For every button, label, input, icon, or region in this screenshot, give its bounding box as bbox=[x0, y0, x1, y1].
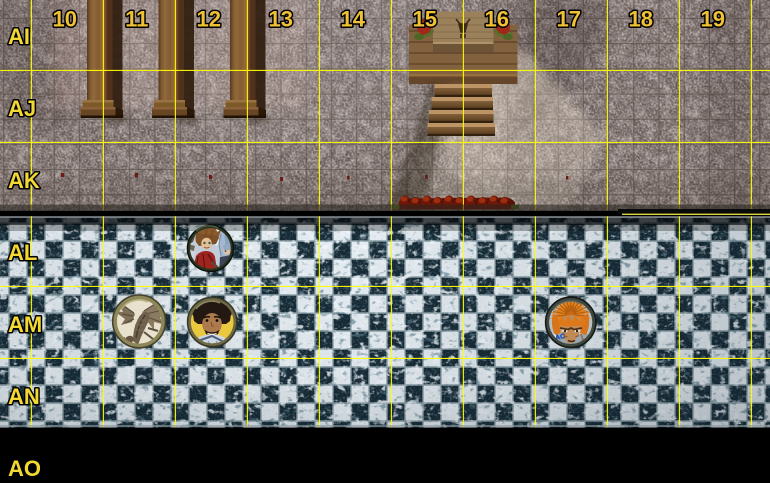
svg-text:AO: AO bbox=[8, 456, 41, 481]
svg-text:16: 16 bbox=[485, 7, 509, 32]
svg-text:AI: AI bbox=[8, 24, 30, 49]
svg-text:AL: AL bbox=[8, 240, 37, 265]
svg-text:13: 13 bbox=[269, 7, 293, 32]
svg-text:AN: AN bbox=[8, 384, 40, 409]
svg-text:17: 17 bbox=[557, 7, 581, 32]
svg-text:15: 15 bbox=[413, 7, 437, 32]
svg-text:10: 10 bbox=[53, 7, 77, 32]
svg-text:AM: AM bbox=[8, 312, 42, 337]
svg-text:18: 18 bbox=[629, 7, 653, 32]
svg-text:19: 19 bbox=[701, 7, 725, 32]
svg-text:AK: AK bbox=[8, 168, 40, 193]
svg-text:12: 12 bbox=[197, 7, 221, 32]
svg-text:AJ: AJ bbox=[8, 96, 36, 121]
svg-text:11: 11 bbox=[125, 7, 148, 32]
svg-text:14: 14 bbox=[341, 7, 366, 32]
